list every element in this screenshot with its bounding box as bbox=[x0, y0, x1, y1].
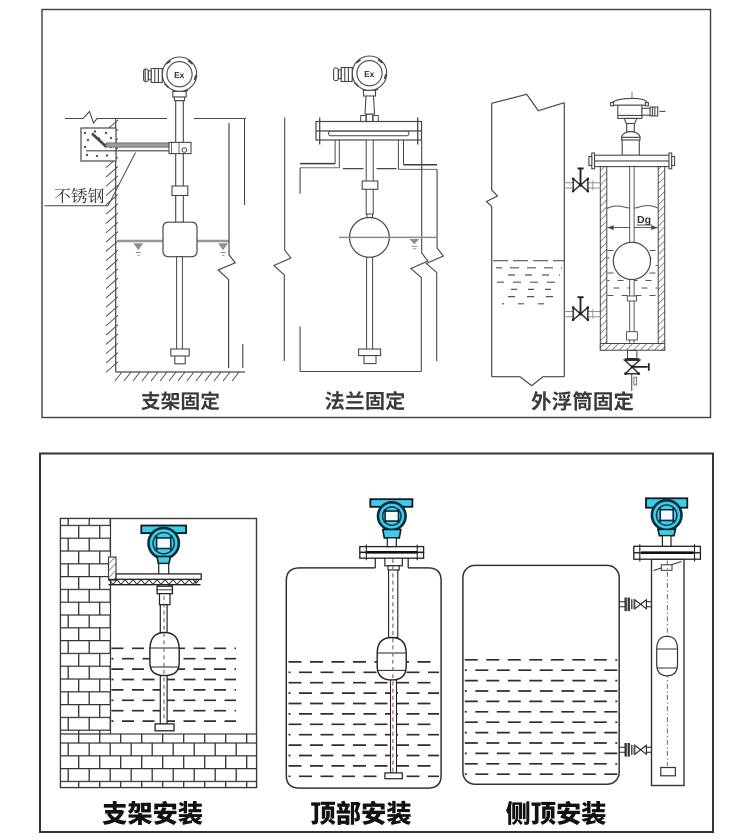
svg-text:Ex: Ex bbox=[364, 69, 375, 79]
svg-text:Dg: Dg bbox=[637, 214, 651, 226]
svg-text:Ex: Ex bbox=[174, 70, 185, 80]
